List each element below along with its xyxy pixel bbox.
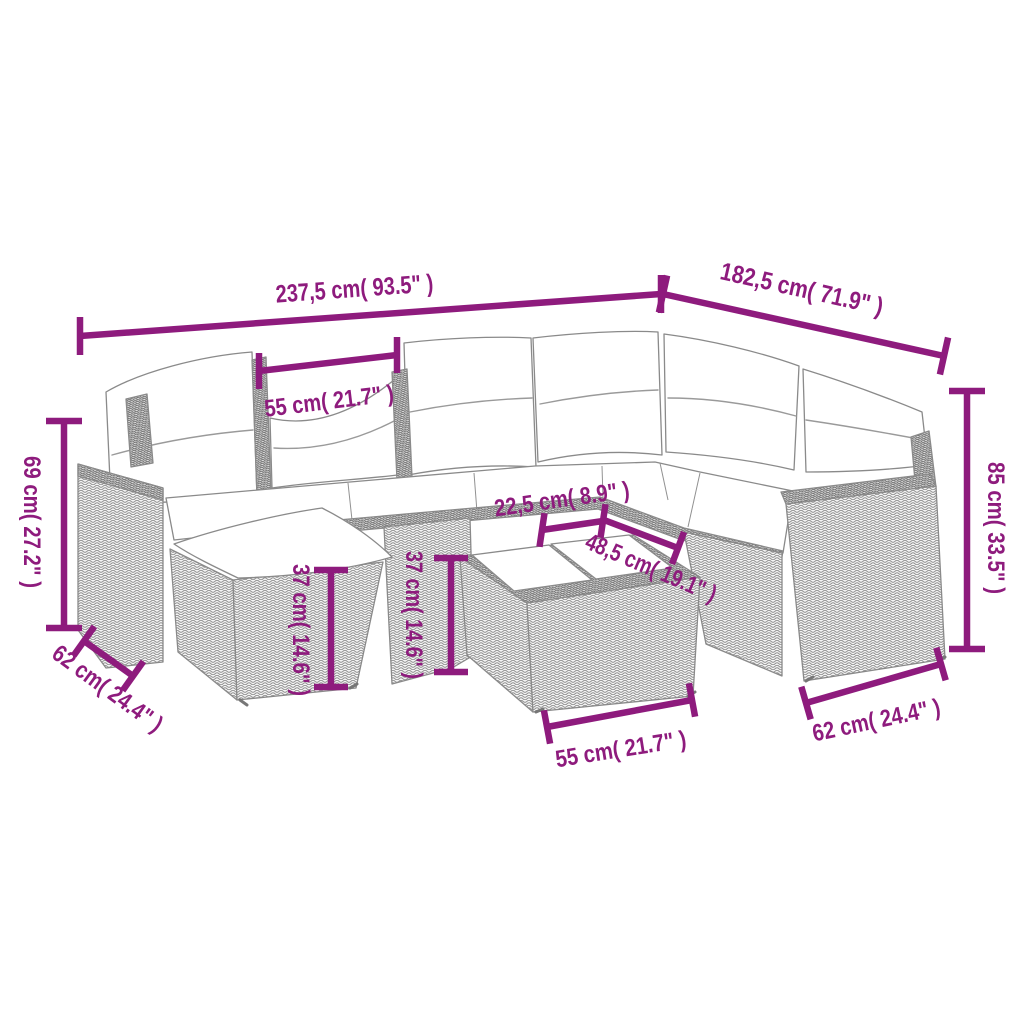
product-image: 237,5 cm( 93.5" ) 182,5 cm( 71.9" ) 55 c… <box>0 0 1024 1024</box>
dim-label-overall-height: 85 cm( 33.5" ) <box>982 462 1009 594</box>
back-cushion <box>404 337 536 475</box>
dim-label-stool-height: 37 cm( 14.6" ) <box>287 564 314 696</box>
right-armrest-body <box>786 486 945 681</box>
back-cushion <box>533 331 662 462</box>
sofa-front-face <box>384 518 474 684</box>
dim-label-backrest-height: 69 cm( 27.2" ) <box>18 456 45 588</box>
product-dimension-diagram: 237,5 cm( 93.5" ) 182,5 cm( 71.9" ) 55 c… <box>0 0 1024 1024</box>
right-armrest <box>781 474 945 681</box>
dim-label-seat-height: 37 cm( 14.6" ) <box>400 551 427 679</box>
